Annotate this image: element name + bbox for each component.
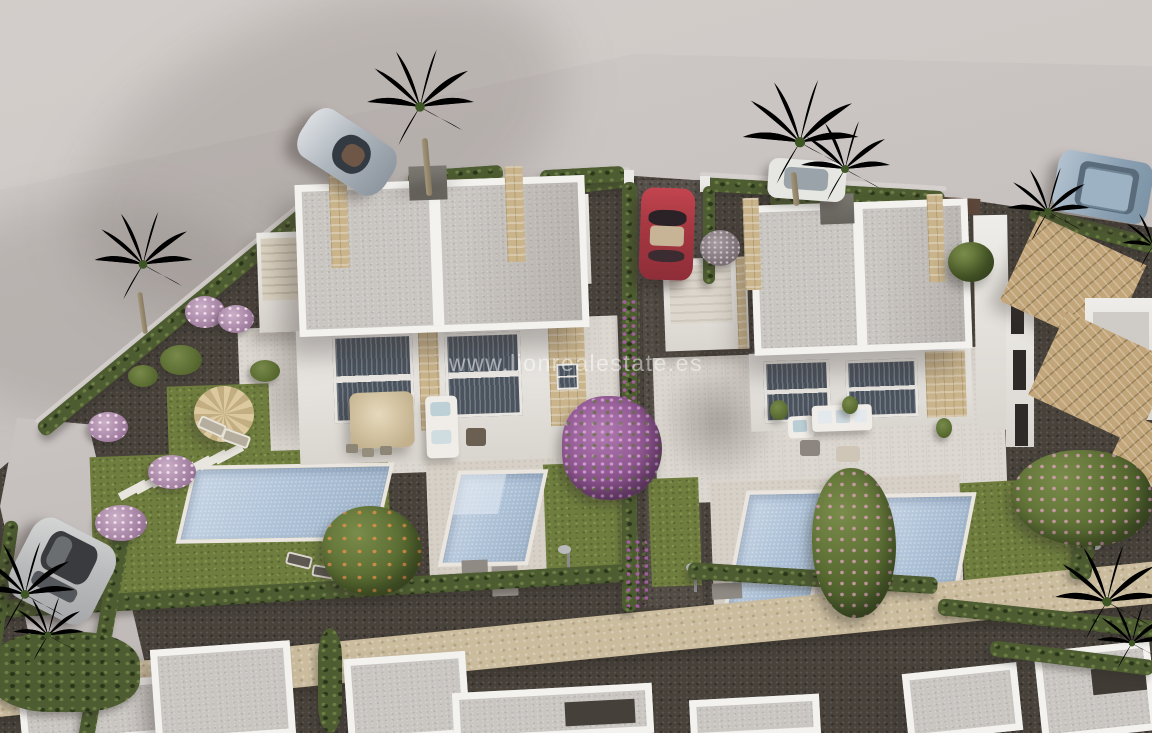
- palm-tree: [1002, 162, 1094, 254]
- right-villa-stone-chimney: [926, 194, 945, 283]
- left-villa-roof-divider: [429, 187, 445, 325]
- potted-plant: [770, 400, 788, 420]
- sofa-cushion: [818, 410, 832, 423]
- terrace-umbrella: [349, 391, 415, 449]
- armchair-cushion: [793, 420, 808, 433]
- palm-tree: [360, 42, 480, 162]
- outdoor-sofa: [425, 395, 459, 458]
- aerial-render-scene: www.lionrealestate.es: [0, 0, 1152, 733]
- neighbour-rooftop: [150, 640, 296, 733]
- coffee-table: [800, 440, 820, 456]
- outdoor-armchair: [787, 415, 814, 438]
- neighbour-rooftop: [343, 651, 471, 733]
- blossom-tree-far-right: [1012, 450, 1152, 546]
- potted-plant: [842, 396, 858, 414]
- banana-plant: [1092, 600, 1152, 680]
- car-interior: [650, 225, 685, 246]
- cypress-tree: [318, 628, 342, 733]
- pool-left-b-steps: [453, 474, 507, 514]
- outdoor-shower-mats: [712, 582, 743, 600]
- flower-bush: [148, 455, 196, 489]
- left-villa-stone-chimney: [504, 166, 525, 263]
- orange-tree: [322, 506, 422, 596]
- palm-tree: [1118, 208, 1152, 278]
- flower-bush: [88, 412, 128, 442]
- neighbour-rooftop: [689, 694, 821, 733]
- dining-chair: [362, 448, 374, 457]
- bougainvillea-vine: [624, 538, 648, 608]
- palm-tree: [8, 592, 88, 672]
- rooftop-courtyard: [564, 699, 635, 727]
- round-stone-shrub: [700, 230, 740, 266]
- tiled-house-slot-window: [1015, 404, 1028, 446]
- palm-tree: [88, 205, 198, 315]
- green-tree-right-wall: [948, 242, 994, 282]
- car-rear-glass: [648, 249, 684, 262]
- ottoman-pouf: [836, 446, 860, 462]
- right-villa-stone-chimney: [742, 198, 761, 291]
- watermark: www.lionrealestate.es: [0, 350, 1152, 377]
- right-villa-roof-divider: [853, 209, 868, 345]
- side-table: [466, 428, 486, 446]
- outdoor-shower-head: [558, 545, 571, 554]
- sofa-cushion: [430, 402, 450, 417]
- dining-chair: [346, 444, 358, 453]
- neighbour-rooftop: [902, 662, 1023, 733]
- flower-bush: [218, 305, 254, 333]
- palm-tree: [795, 115, 895, 215]
- potted-plant: [936, 418, 952, 438]
- dining-chair: [380, 446, 392, 455]
- bougainvillea-tree: [562, 396, 662, 500]
- sofa-cushion: [431, 430, 451, 445]
- red-car: [638, 187, 695, 281]
- car-windshield: [648, 209, 687, 226]
